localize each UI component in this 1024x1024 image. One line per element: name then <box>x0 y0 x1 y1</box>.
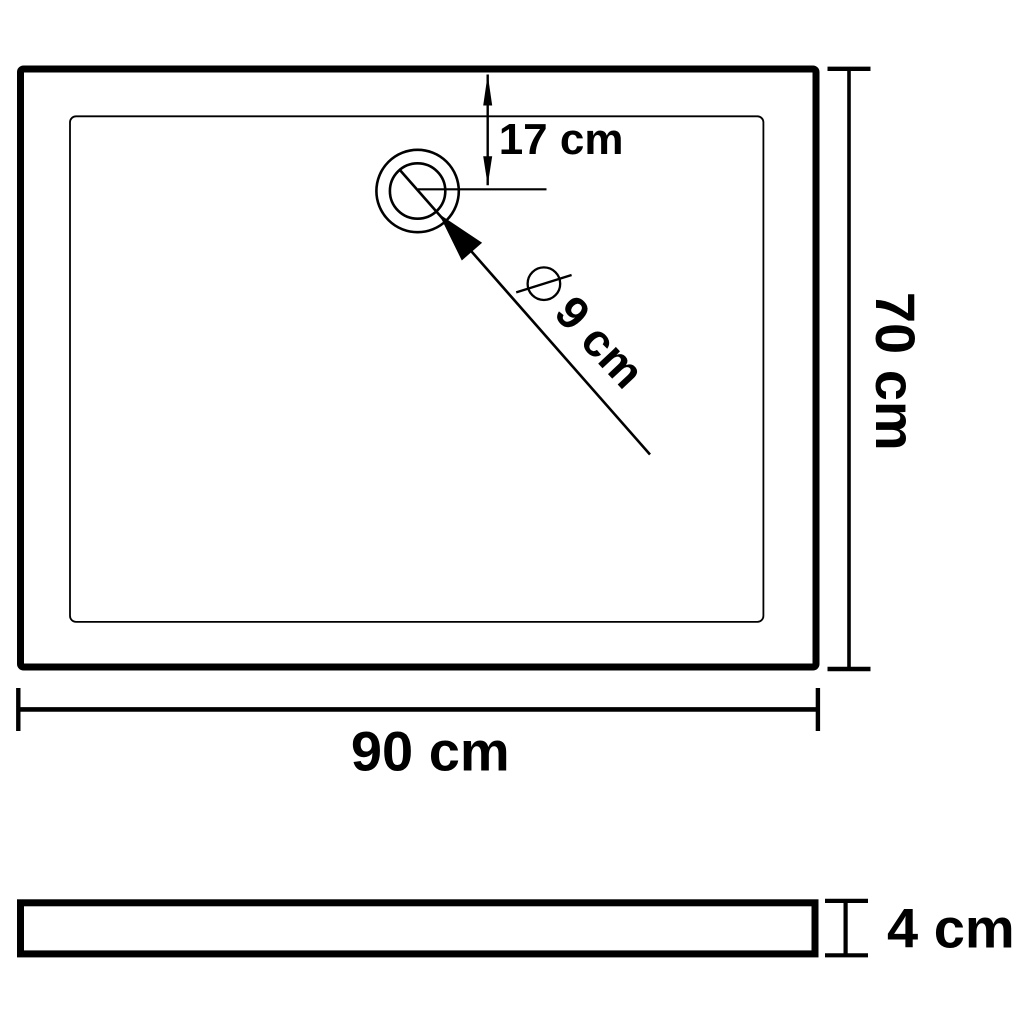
svg-text:9 cm: 9 cm <box>545 286 655 398</box>
svg-text:4 cm: 4 cm <box>887 897 1015 960</box>
svg-text:90 cm: 90 cm <box>351 720 510 783</box>
svg-text:17 cm: 17 cm <box>499 115 624 164</box>
svg-text:70 cm: 70 cm <box>864 292 927 451</box>
